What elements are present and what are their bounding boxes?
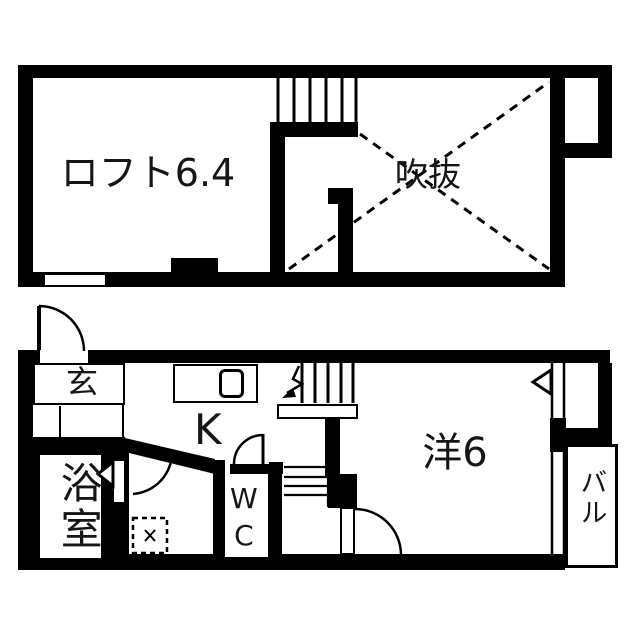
stair-side-wall [325,418,340,478]
kitchen-counter [173,364,258,403]
right-wall-chunk [550,418,566,452]
kitchen-label: K [194,408,222,452]
stair-direction-arrow [282,366,302,398]
first-stairs [302,363,353,403]
bathroom-door-panel [112,459,126,504]
stair-landing [277,404,358,419]
loft-window [45,275,105,285]
washer-area [133,518,167,553]
first-left-wall [18,350,33,570]
loft-stairs [278,78,356,122]
entrance-door-arc [39,306,84,351]
loft-divider-wall [270,122,285,272]
entrance-opening [40,350,88,363]
toilet-door [234,434,263,464]
toilet-door-arc [234,435,263,464]
loft-right-wall [550,65,565,287]
floor-plan: ロフト6.4 吹抜 玄 K WC 浴室 洋6 バル [0,0,640,640]
loft-left-wall [18,65,33,287]
kitchen-sink [219,369,244,398]
room-door-arc [355,509,401,555]
void-label: 吹抜 [392,158,464,193]
toilet-label: WC [229,482,258,556]
window-opening-marker [533,370,551,394]
void-stub-wall [338,188,353,272]
entrance-step-lines [60,404,123,437]
loft-pocket-bottom-wall [565,143,612,158]
bathroom-label: 浴室 [56,461,100,553]
loft-pillar-block [171,258,218,272]
hall-wall-piece [269,462,283,474]
toilet-right-wall [268,470,282,570]
balcony-glass-door [552,450,564,554]
entrance-label: 玄 [66,366,98,400]
lower-steps [284,463,328,507]
balcony-label: バル [576,468,604,528]
first-top-wall [18,350,610,363]
hall-wall-chunk [328,474,357,508]
entrance-door [39,306,84,351]
loft-room-label: ロフト6.4 [56,154,240,194]
western-room-label: 洋6 [415,432,495,474]
bathroom-door-arc [133,450,172,494]
toilet-left-wall [213,460,225,570]
loft-top-wall [18,65,612,78]
room-door-leaf [340,507,355,555]
